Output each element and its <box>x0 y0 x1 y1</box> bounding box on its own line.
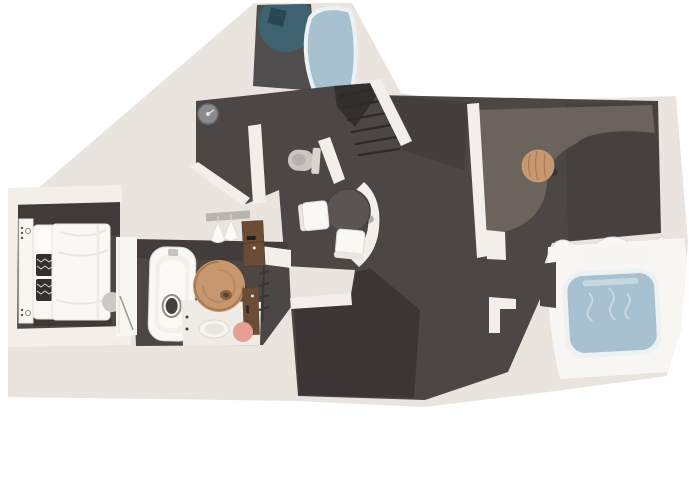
bedroom-furniture <box>19 219 122 326</box>
double-bed <box>52 224 110 320</box>
panel-dot <box>21 309 23 311</box>
top-bathtub <box>306 8 356 93</box>
bedside-panel <box>19 219 33 323</box>
pink-stool <box>233 322 253 342</box>
cushion <box>36 279 53 301</box>
panel-dot <box>21 227 23 229</box>
floorplan-svg <box>0 0 700 500</box>
wall-stub-living <box>486 230 506 260</box>
cushion <box>36 254 53 276</box>
dining-chair-left <box>302 201 330 231</box>
wall-bedroom-left <box>8 202 18 339</box>
mat-dot <box>186 328 189 331</box>
bathroom-doorway <box>540 262 556 308</box>
cabinet-handle <box>247 236 256 240</box>
rattan-round-rug <box>193 260 245 312</box>
bed-top-pillow <box>36 228 54 252</box>
room-entry-foyer <box>253 0 356 93</box>
floorplan-canvas <box>0 0 700 500</box>
wall-bedroom-bottom <box>8 326 131 347</box>
rattan-hole-dark <box>223 293 229 298</box>
panel-dot <box>21 232 23 234</box>
panel-dot <box>21 314 23 316</box>
wall-bedroom-top <box>8 185 122 205</box>
mat-dot <box>186 316 189 319</box>
vanity-handle <box>246 305 249 313</box>
faucet <box>168 249 178 256</box>
dining-table <box>326 189 370 233</box>
bedroom-divider <box>116 237 137 337</box>
soap-tray-inner <box>204 324 224 335</box>
panel-dot <box>21 237 23 239</box>
master-bathroom <box>540 238 687 379</box>
